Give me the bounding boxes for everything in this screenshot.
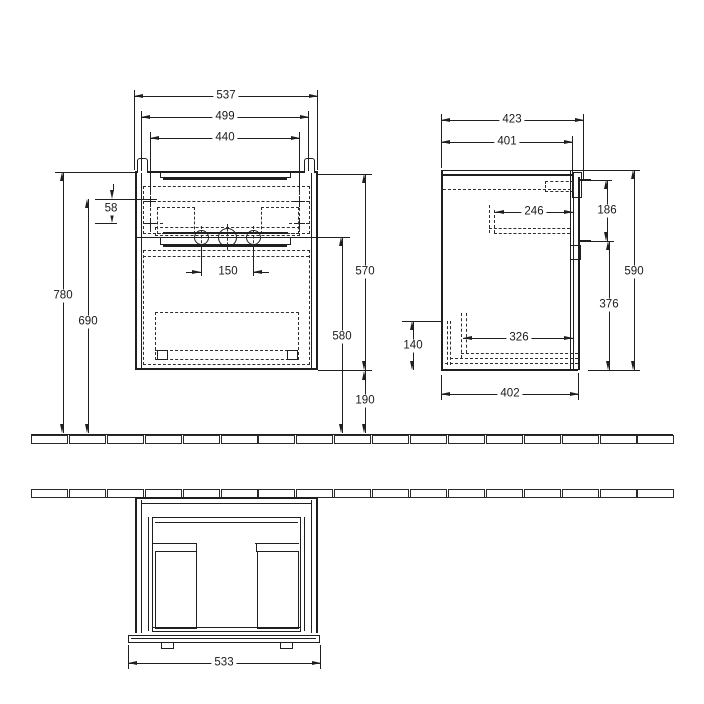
arrow [253,270,262,274]
dim-side-overall-depth: 423 [499,114,524,127]
dim-front-fixing-width: 440 [212,132,237,145]
dim-side-recess-height: 140 [400,340,425,353]
arrow [110,190,114,199]
ext-line [128,645,129,669]
edge-left-inner [141,500,142,633]
dim-front-tap-spacing: 150 [215,266,240,279]
arrow [564,140,573,144]
arrow [495,210,504,214]
edge-right-inner [311,500,312,633]
drawer-back-line2 [155,522,298,523]
dim-front-total-height: 780 [50,290,75,303]
edge-left [135,497,137,633]
arrow [463,336,472,340]
dim-side-bottom-depth: 402 [497,388,522,401]
dim-front-overall-width: 537 [213,90,238,103]
arrow [85,424,89,433]
front-panel-tab-right [280,642,293,649]
arrow [309,94,318,98]
arrow [85,199,89,208]
dim-side-inner-depth: 326 [506,332,531,345]
dim-side-carcass-depth: 401 [494,136,519,149]
arrow [300,115,309,119]
block-cap-left-a [153,543,197,544]
drawer-back-line1 [152,517,301,518]
dim-front-floor-clearance: 190 [352,395,377,408]
arrow [362,371,366,380]
arrow [60,424,64,433]
arrow [410,361,414,370]
arrow [291,136,300,140]
arrow [441,392,450,396]
dim-bottom-front-width: 533 [211,657,236,670]
slide-rail-left [148,517,149,631]
arrow [192,270,201,274]
drawer-block-left [155,551,197,629]
back-inner-line [141,503,312,504]
drawer-block-right [257,551,299,629]
arrow [141,115,150,119]
dim-front-fixing-height: 690 [75,316,100,329]
block-cap-right-a [255,543,299,544]
arrow [60,172,64,181]
arrow [441,140,450,144]
arrow [150,136,159,140]
arrow [570,392,579,396]
arrow [564,210,573,214]
arrow [339,237,343,246]
arrow [604,232,608,241]
arrow [631,361,635,370]
arrow [410,321,414,330]
arrow [606,241,610,250]
arrow [134,94,143,98]
dim-side-bracket-drop: 186 [594,205,619,218]
arrow [339,424,343,433]
arrow [362,424,366,433]
dim-side-lower-height: 376 [596,299,621,312]
arrow [362,361,366,370]
ext-line [320,645,321,669]
arrow [631,170,635,179]
arrow [128,661,137,665]
drawer-bottom-line2 [152,631,301,632]
front-panel-tab-left [161,642,174,649]
drawer-bottom-line1 [152,627,301,628]
dim-front-carcass-width: 499 [212,111,237,124]
arrow [604,180,608,189]
drawer-side-left [152,517,153,631]
front-panel-inner-line [131,638,316,639]
technical-drawing-canvas: 537 499 440 150 58 780 [0,0,704,704]
dim-front-front-height: 580 [329,331,354,344]
edge-right [316,497,318,633]
dim-side-height: 590 [621,266,646,279]
slide-rail-right [304,517,305,631]
arrow [312,661,321,665]
plan-view: 533 [0,0,704,704]
dim-side-bracket-depth: 246 [521,206,546,219]
edge-back [135,497,318,499]
arrow [564,336,573,340]
dim-front-fixing-gap: 58 [102,203,121,216]
arrow [441,118,450,122]
arrow [362,174,366,183]
dim-front-carcass-height: 570 [352,266,377,279]
drawer-side-right [300,517,301,631]
arrow [575,118,584,122]
arrow [606,361,610,370]
